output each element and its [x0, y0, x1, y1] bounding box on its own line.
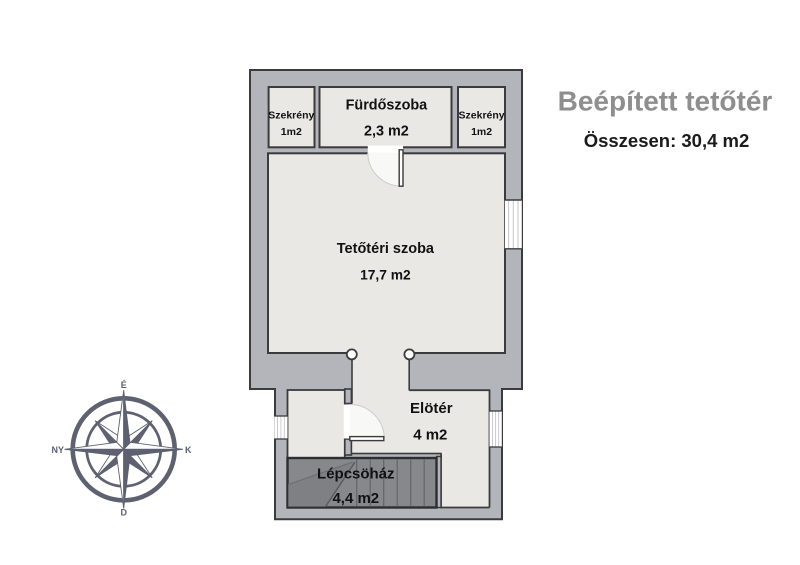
svg-text:D: D — [120, 507, 127, 517]
svg-text:1m2: 1m2 — [281, 126, 302, 138]
svg-text:K: K — [185, 445, 192, 455]
svg-text:Beépített tetőtér: Beépített tetőtér — [558, 86, 773, 117]
svg-text:Szekrény: Szekrény — [268, 109, 314, 121]
svg-text:1m2: 1m2 — [471, 126, 492, 138]
svg-text:4,4 m2: 4,4 m2 — [332, 490, 379, 507]
svg-text:Lépcsöház: Lépcsöház — [317, 465, 395, 482]
svg-text:É: É — [121, 380, 127, 390]
svg-text:Tetőtéri szoba: Tetőtéri szoba — [337, 241, 435, 257]
svg-text:Fürdőszoba: Fürdőszoba — [346, 98, 429, 114]
svg-text:NY: NY — [51, 445, 64, 455]
svg-text:Szekrény: Szekrény — [459, 109, 505, 121]
svg-text:Elötér: Elötér — [410, 400, 453, 417]
svg-text:2,3 m2: 2,3 m2 — [364, 123, 409, 139]
svg-text:Összesen: 30,4 m2: Összesen: 30,4 m2 — [584, 130, 750, 151]
svg-text:17,7 m2: 17,7 m2 — [360, 267, 411, 282]
svg-text:4 m2: 4 m2 — [413, 427, 447, 444]
